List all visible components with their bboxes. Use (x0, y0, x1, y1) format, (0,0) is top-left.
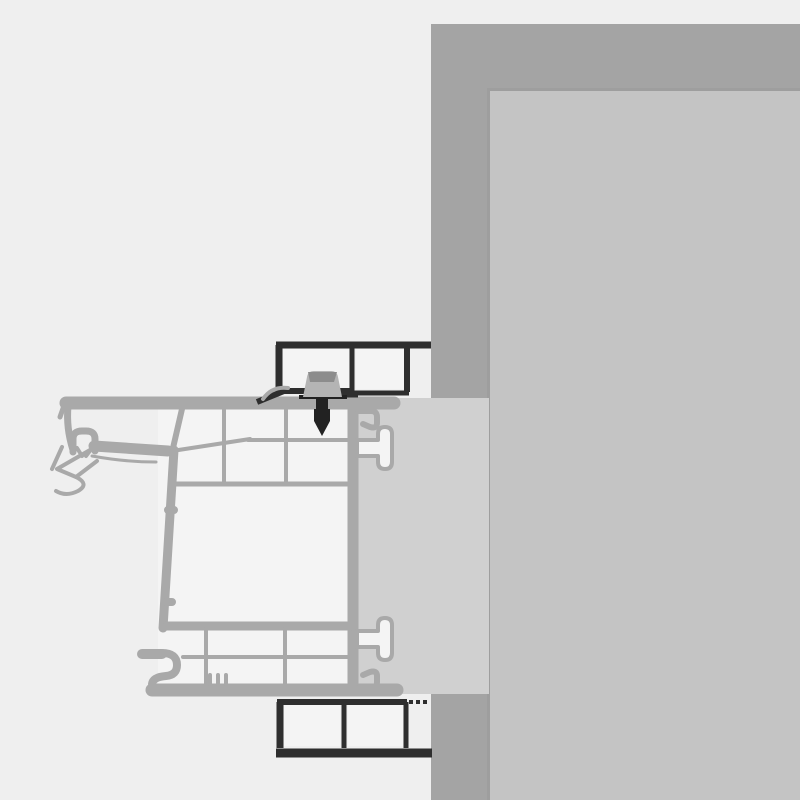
wall-reveal-surface (490, 91, 800, 800)
diagram-stage (0, 0, 800, 800)
addon-cell (284, 705, 340, 746)
screw-head-hatch (308, 372, 337, 382)
frame-band (94, 446, 168, 451)
addon-cell (356, 349, 404, 389)
frame-body (158, 400, 356, 688)
addon-cell (348, 705, 403, 746)
installation-cross-section (0, 0, 800, 800)
